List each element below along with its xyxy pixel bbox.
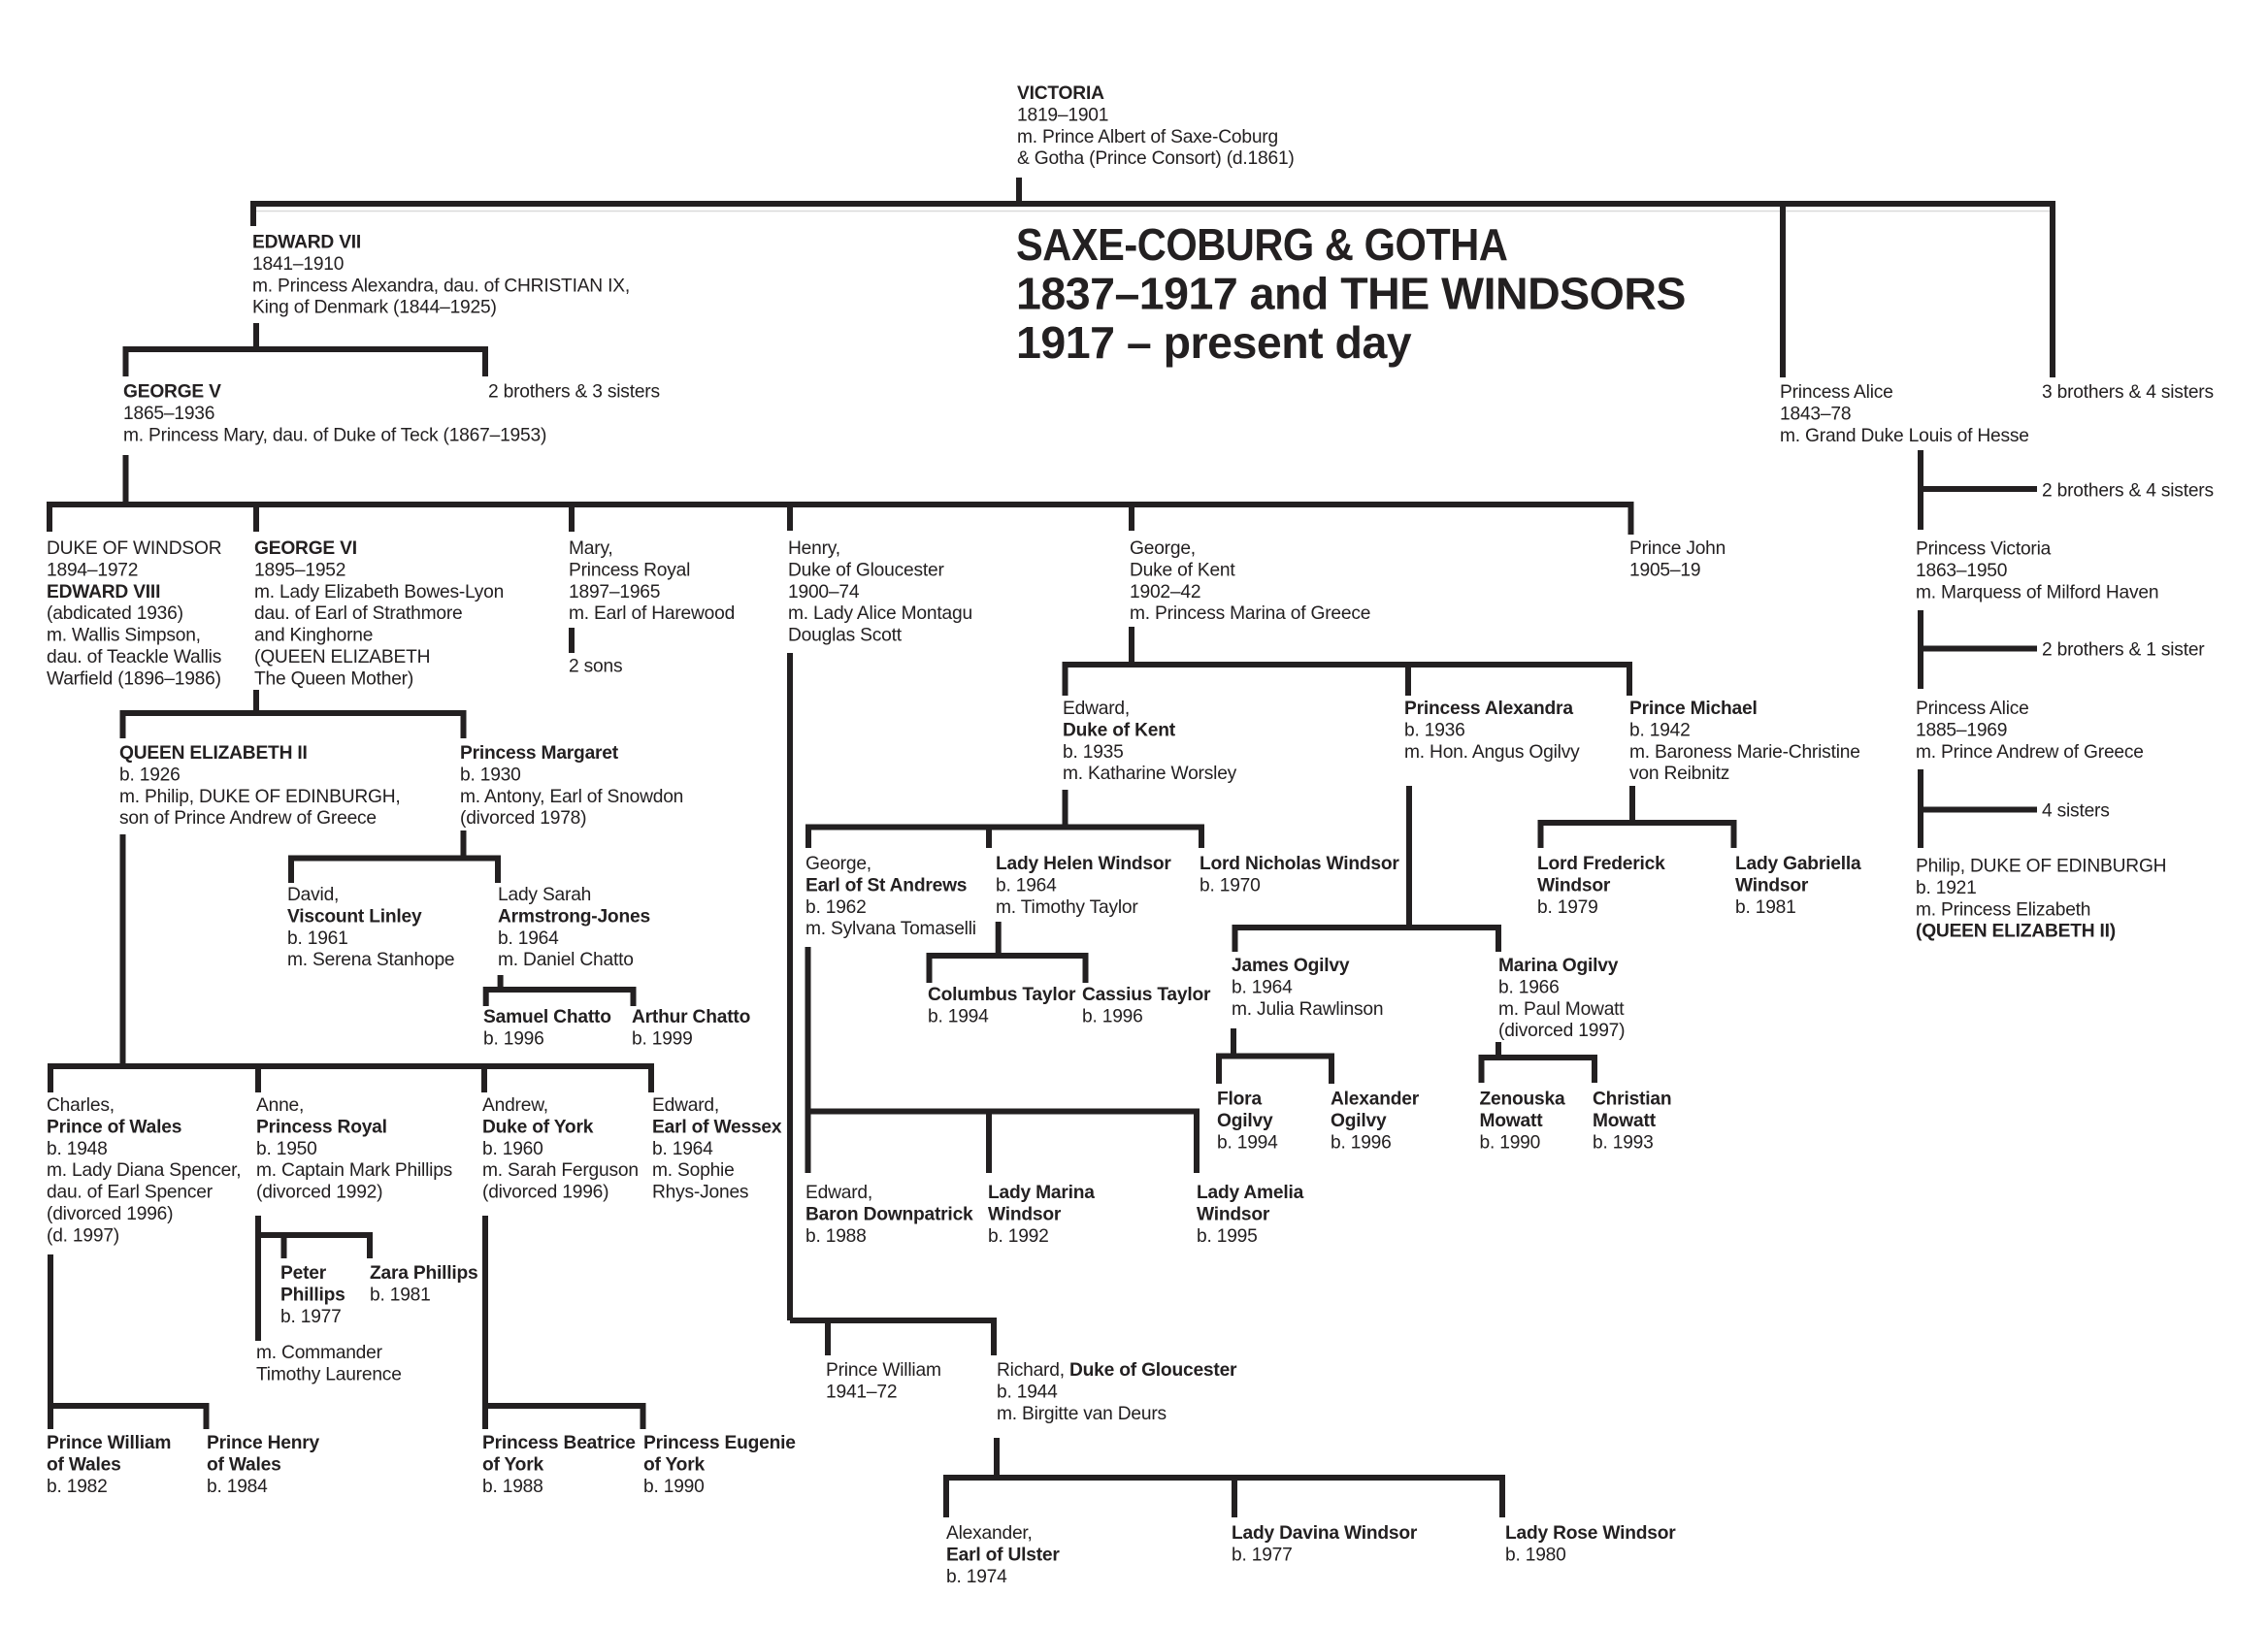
svg-text:2 sons: 2 sons xyxy=(569,657,622,677)
svg-text:Marina Ogilvyb. 1966m. Paul Mo: Marina Ogilvyb. 1966m. Paul Mowatt(divor… xyxy=(1498,956,1625,1041)
svg-text:2 brothers & 3 sisters: 2 brothers & 3 sisters xyxy=(488,382,660,403)
svg-text:2 brothers & 4 sisters: 2 brothers & 4 sisters xyxy=(2042,481,2214,502)
svg-text:SAXE-COBURG & GOTHA: SAXE-COBURG & GOTHA xyxy=(1016,220,1507,271)
svg-text:3 brothers & 4 sisters: 3 brothers & 4 sisters xyxy=(2042,382,2214,403)
svg-text:2 brothers & 1 sister: 2 brothers & 1 sister xyxy=(2042,640,2205,661)
svg-text:1917 – present day: 1917 – present day xyxy=(1016,317,1412,368)
svg-text:1837–1917 and THE WINDSORS: 1837–1917 and THE WINDSORS xyxy=(1016,269,1686,319)
svg-text:4 sisters: 4 sisters xyxy=(2042,801,2110,822)
svg-text:m. CommanderTimothy Laurence: m. CommanderTimothy Laurence xyxy=(256,1343,402,1384)
